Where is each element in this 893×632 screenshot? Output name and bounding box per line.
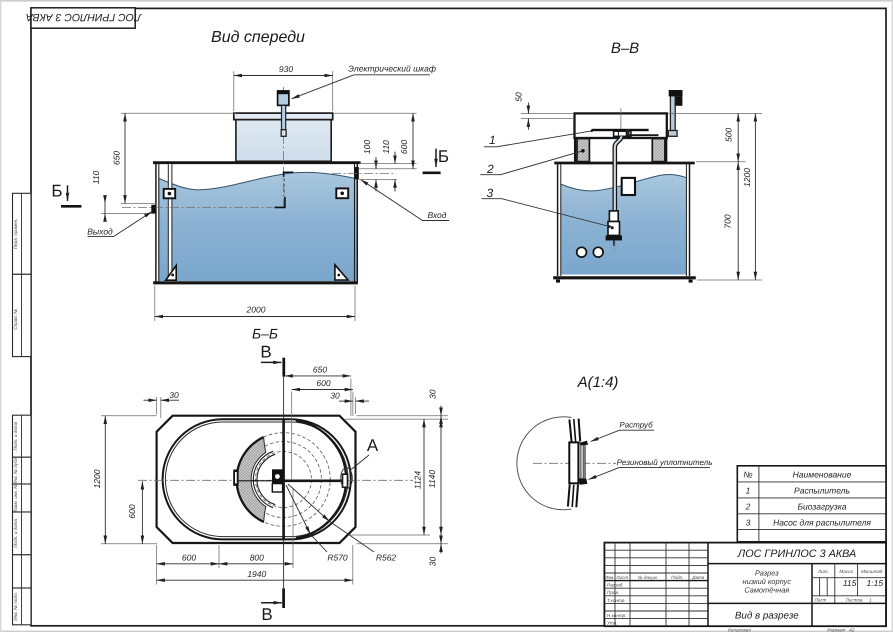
svg-text:1: 1 xyxy=(869,598,872,603)
svg-text:А(1:4): А(1:4) xyxy=(577,374,619,391)
svg-text:2: 2 xyxy=(486,162,494,176)
svg-text:Инв. № подл.: Инв. № подл. xyxy=(13,592,18,621)
svg-text:30: 30 xyxy=(330,391,340,401)
svg-text:1:15: 1:15 xyxy=(867,578,884,588)
svg-text:Лист: Лист xyxy=(813,598,826,603)
svg-text:650: 650 xyxy=(112,151,122,165)
svg-text:Биозагрузка: Биозагрузка xyxy=(797,502,846,512)
svg-text:Распылитель: Распылитель xyxy=(794,486,850,496)
svg-text:110: 110 xyxy=(91,170,101,184)
svg-text:Разраб.: Разраб. xyxy=(607,583,624,588)
svg-text:Копировал: Копировал xyxy=(728,627,751,632)
svg-text:Подп.: Подп. xyxy=(671,575,683,580)
svg-text:В: В xyxy=(261,605,272,624)
svg-text:Формат: Формат xyxy=(827,627,845,632)
svg-text:ЛОС ГРИНЛОС 3 АКВА: ЛОС ГРИНЛОС 3 АКВА xyxy=(737,548,856,560)
svg-text:Масса: Масса xyxy=(839,569,853,574)
svg-text:№ докум.: № докум. xyxy=(638,575,658,580)
svg-text:Б: Б xyxy=(51,182,62,201)
svg-text:1200: 1200 xyxy=(742,168,752,187)
svg-text:Б–Б: Б–Б xyxy=(252,326,278,342)
svg-text:930: 930 xyxy=(279,64,293,74)
svg-text:100: 100 xyxy=(362,140,372,154)
svg-text:Пров.: Пров. xyxy=(607,590,619,595)
svg-text:А2: А2 xyxy=(848,627,855,632)
svg-text:1: 1 xyxy=(746,486,751,496)
svg-text:Т.контр.: Т.контр. xyxy=(607,598,626,603)
svg-text:Взам. инв. №: Взам. инв. № xyxy=(13,484,18,512)
svg-text:Инв. № дубл.: Инв. № дубл. xyxy=(13,456,18,484)
svg-text:1140: 1140 xyxy=(427,470,437,489)
svg-text:1: 1 xyxy=(489,133,496,147)
svg-text:1124: 1124 xyxy=(413,471,423,490)
svg-text:Подп. и дата: Подп. и дата xyxy=(13,421,18,450)
svg-text:Н.контр.: Н.контр. xyxy=(607,613,626,618)
svg-text:600: 600 xyxy=(316,378,330,388)
svg-text:Справ. №: Справ. № xyxy=(13,309,18,330)
svg-text:30: 30 xyxy=(169,390,179,400)
svg-text:Самотёчная: Самотёчная xyxy=(744,586,789,595)
svg-text:30: 30 xyxy=(428,557,438,567)
svg-text:Наименование: Наименование xyxy=(793,470,852,480)
svg-text:500: 500 xyxy=(724,128,734,142)
svg-text:2000: 2000 xyxy=(246,305,266,315)
svg-text:Лист: Лист xyxy=(615,575,628,580)
svg-text:Б: Б xyxy=(438,147,449,166)
svg-text:600: 600 xyxy=(182,553,196,563)
svg-text:Насос для распылителя: Насос для распылителя xyxy=(773,517,871,527)
svg-text:Перв. примен.: Перв. примен. xyxy=(13,219,18,250)
svg-text:Выход: Выход xyxy=(87,227,113,237)
svg-text:30: 30 xyxy=(428,389,438,399)
svg-text:Резиновый уплотнитель: Резиновый уплотнитель xyxy=(617,458,713,467)
svg-text:ЛОС ГРИНЛОС 3 АКВА: ЛОС ГРИНЛОС 3 АКВА xyxy=(26,11,142,23)
svg-text:Утв.: Утв. xyxy=(607,620,617,625)
svg-text:В–В: В–В xyxy=(611,40,639,57)
svg-text:3: 3 xyxy=(746,517,751,527)
svg-text:700: 700 xyxy=(723,214,733,228)
svg-text:R570: R570 xyxy=(327,553,348,563)
svg-text:Лит.: Лит. xyxy=(817,569,829,574)
svg-text:115: 115 xyxy=(843,578,857,588)
svg-text:Масштаб: Масштаб xyxy=(861,569,883,574)
svg-text:3: 3 xyxy=(487,186,494,200)
svg-text:Раструб: Раструб xyxy=(619,421,653,430)
svg-text:А: А xyxy=(367,436,379,455)
svg-text:Дата: Дата xyxy=(691,575,705,580)
svg-text:50: 50 xyxy=(514,92,524,102)
svg-text:1940: 1940 xyxy=(247,569,266,579)
svg-text:Вид спереди: Вид спереди xyxy=(211,29,305,46)
svg-text:Вход: Вход xyxy=(428,210,447,220)
svg-text:650: 650 xyxy=(313,364,327,374)
svg-text:R562: R562 xyxy=(376,553,397,563)
svg-text:110: 110 xyxy=(381,140,391,154)
svg-text:Изм.: Изм. xyxy=(605,575,615,580)
svg-text:В: В xyxy=(260,343,271,362)
svg-text:Электрический шкаф: Электрический шкаф xyxy=(348,64,436,74)
svg-text:Листов: Листов xyxy=(845,598,863,603)
svg-text:600: 600 xyxy=(399,140,409,154)
svg-text:№: № xyxy=(743,470,752,480)
svg-text:Подп. и дата: Подп. и дата xyxy=(13,519,18,548)
svg-text:800: 800 xyxy=(250,553,264,563)
svg-text:2: 2 xyxy=(745,502,751,512)
svg-text:1200: 1200 xyxy=(92,469,102,488)
svg-text:600: 600 xyxy=(127,504,137,518)
svg-text:Вид в разрезе: Вид в разрезе xyxy=(735,611,799,622)
